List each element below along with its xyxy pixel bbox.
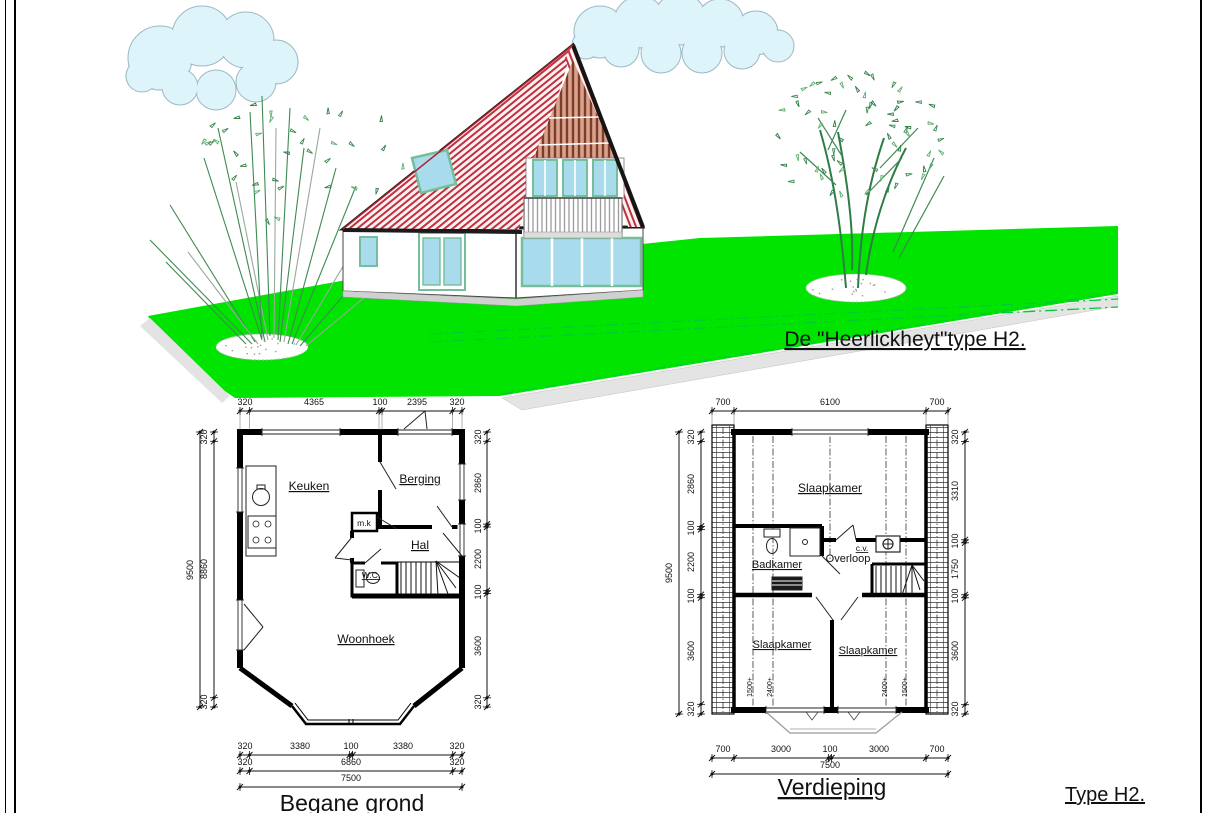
gable-upper-windows (526, 158, 624, 198)
dim-label: 1750 (950, 559, 960, 579)
room-label-slaapkamer-right: Slaapkamer (839, 645, 898, 657)
cloud-left (126, 6, 298, 110)
ground-floor-plan: Keuken Berging m.k Hal W.C. Woonhoek 320… (185, 397, 483, 813)
dim-label: 4365 (304, 397, 324, 407)
room-label-keuken: Keuken (289, 479, 330, 493)
room-label-slaapkamer-top: Slaapkamer (798, 481, 862, 495)
room-label-hal: Hal (411, 538, 429, 552)
upper-floor-title: Verdieping (778, 774, 887, 800)
dim-label: 100 (686, 520, 696, 535)
house-left-facade (343, 229, 516, 298)
drawing-sheet: De "Heerlickheyt"type H2. (0, 0, 1220, 813)
drawing-title: De "Heerlickheyt"type H2. (784, 328, 1025, 351)
upper-floor-plan: Slaapkamer Badkamer Overloop c.v. Slaapk… (664, 397, 960, 800)
dim-label: 2200 (686, 552, 696, 572)
dim-label: 320 (237, 397, 252, 407)
dim-label: 3380 (290, 741, 310, 751)
upper-walls (731, 429, 929, 713)
dim-label: 6860 (341, 757, 361, 767)
dim-label: 320 (473, 694, 483, 709)
shower (790, 528, 820, 556)
knee-label: 1500+ (902, 677, 909, 697)
room-label-mk: m.k (357, 518, 371, 528)
dim-label: 3380 (393, 741, 413, 751)
dim-label: 320 (950, 701, 960, 716)
dim-label: 700 (929, 744, 944, 754)
room-label-woonhoek: Woonhoek (337, 632, 395, 646)
dim-label: 320 (449, 741, 464, 751)
dim-label: 3600 (950, 641, 960, 661)
dim-label: 700 (929, 397, 944, 407)
knee-label: 2400+ (767, 677, 774, 697)
dim-label: 3600 (686, 641, 696, 661)
dim-label: 100 (686, 588, 696, 603)
balcony (524, 198, 622, 238)
room-label-badkamer: Badkamer (752, 559, 802, 571)
dim-label: 320 (449, 397, 464, 407)
room-label-overloop: Overloop (826, 553, 871, 565)
scene-rendering: De "Heerlickheyt"type H2. (126, 0, 1118, 410)
dim-label: 320 (473, 429, 483, 444)
ground-floor-title: Begane grond (280, 790, 425, 813)
dim-label: 2200 (473, 549, 483, 569)
dim-label: 7500 (341, 773, 361, 783)
knee-label: 2400+ (882, 677, 889, 697)
dim-label: 700 (715, 744, 730, 754)
dim-label: 320 (237, 741, 252, 751)
dim-label: 100 (343, 741, 358, 751)
dim-label: 100 (950, 588, 960, 603)
dim-label: 7500 (820, 760, 840, 770)
eave-line (343, 230, 522, 232)
dim-label: 3600 (473, 636, 483, 656)
dim-label: 320 (950, 429, 960, 444)
room-label-slaapkamer-left: Slaapkamer (753, 639, 812, 651)
dim-label: 9500 (664, 563, 674, 583)
cloud-middle (572, 0, 794, 73)
dim-label: 700 (715, 397, 730, 407)
dim-label: 3000 (771, 744, 791, 754)
house-roof (343, 45, 643, 238)
bay-roof-outline (766, 712, 902, 733)
toilet-bowl (767, 539, 778, 554)
dim-label: 320 (686, 701, 696, 716)
house-rendering (343, 45, 643, 306)
facade-window-small (360, 237, 377, 266)
dim-label: 9500 (185, 560, 195, 580)
knee-wall-labels: 1500+ 2400+ 2400+ 1500+ (747, 677, 909, 697)
drawing-canvas: De "Heerlickheyt"type H2. (0, 0, 1220, 813)
dim-label: 2395 (407, 397, 427, 407)
dim-label: 100 (950, 533, 960, 548)
radiator (772, 577, 802, 590)
ground-staircase (401, 561, 460, 595)
upper-staircase (876, 565, 924, 595)
dim-label: 100 (473, 518, 483, 533)
dim-label: 320 (686, 429, 696, 444)
dim-label: 100 (822, 744, 837, 754)
dim-label: 100 (473, 584, 483, 599)
room-label-cv: c.v. (856, 543, 869, 553)
toilet-cistern (764, 529, 780, 537)
knee-wall-lines (753, 436, 906, 708)
dim-label: 2860 (686, 474, 696, 494)
room-label-wc: W.C. (362, 570, 380, 580)
dim-label: 2860 (473, 473, 483, 493)
dim-label: 3000 (869, 744, 889, 754)
facade-glass-door (419, 233, 465, 290)
dim-label: 3310 (950, 481, 960, 501)
knee-label: 1500+ (747, 677, 754, 697)
dim-label: 6100 (820, 397, 840, 407)
type-label: Type H2. (1065, 784, 1145, 806)
room-label-berging: Berging (399, 472, 440, 486)
dim-label: 100 (372, 397, 387, 407)
